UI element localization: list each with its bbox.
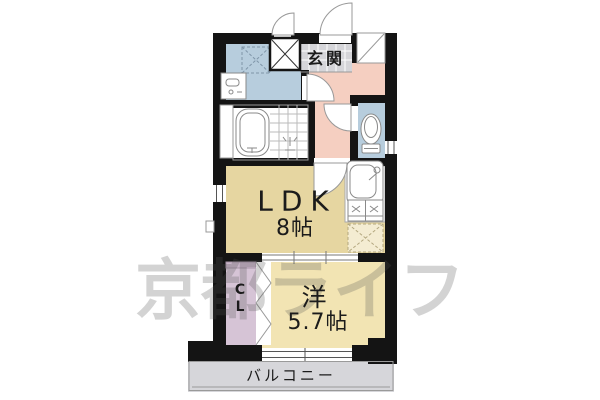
closet-label-l: L [235, 299, 245, 316]
toilet-icon [361, 114, 381, 153]
entrance-door-arc [320, 3, 352, 35]
ldk-size-label: 8帖 [276, 210, 314, 242]
gas-stove-icon [348, 200, 383, 221]
balcony-label: バルコニー [246, 365, 336, 386]
closet-label: C L [235, 282, 245, 316]
meter-box-door-arc [272, 13, 294, 35]
western-room-size-label: 5.7帖 [288, 304, 349, 336]
shoe-cabinet [357, 33, 385, 63]
closet-label-c: C [235, 282, 245, 299]
exterior-fitting [206, 221, 214, 232]
kitchen-sink-icon [347, 161, 383, 203]
floorplan: 京都ライフ 玄関 LDK 8帖 洋 5.7帖 C L バルコニー [0, 0, 600, 400]
washbasin-icon [221, 73, 246, 99]
entrance-label: 玄関 [307, 45, 345, 69]
bathtub-inner [240, 113, 265, 152]
bath-ledge [220, 105, 233, 158]
